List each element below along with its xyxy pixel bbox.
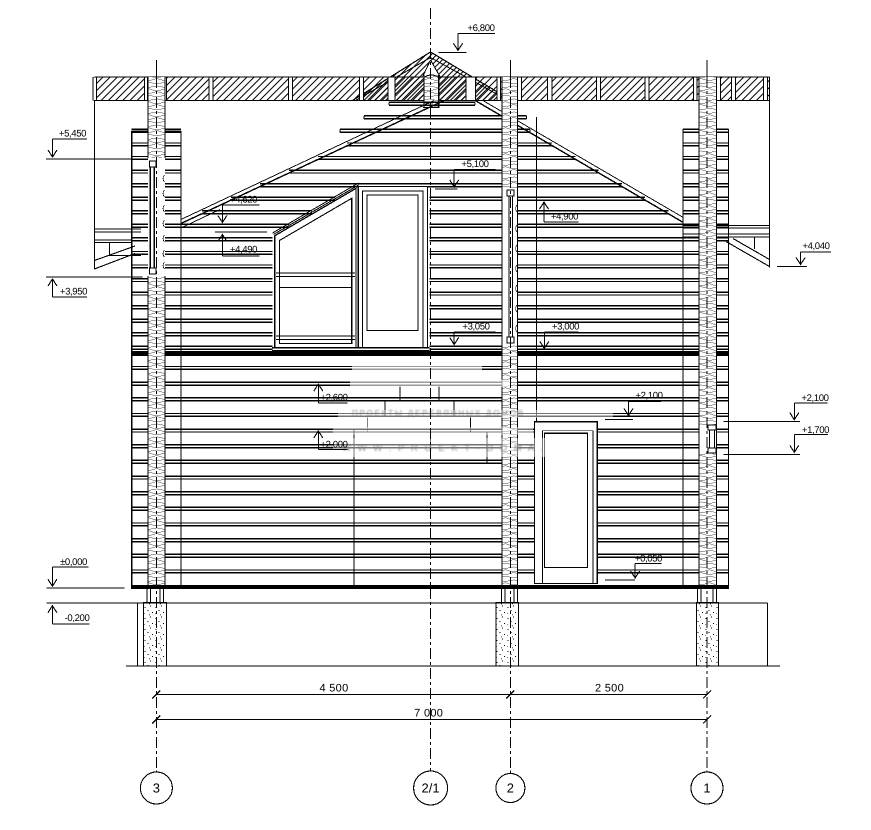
svg-text:W W W . P R O E K T - D O M A: W W W . P R O E K T - D O M A . R U [342,443,572,454]
svg-text:+0,050: +0,050 [635,553,662,564]
svg-text:1: 1 [703,781,710,796]
svg-text:+5,100: +5,100 [461,159,488,170]
svg-text:+6,800: +6,800 [467,23,494,34]
svg-text:+2,600: +2,600 [320,393,347,404]
svg-text:7 000: 7 000 [414,708,443,720]
svg-text:+4,620: +4,620 [230,195,257,206]
svg-text:±0,000: ±0,000 [60,557,87,568]
svg-text:+3,950: +3,950 [60,287,87,298]
svg-text:2/1: 2/1 [422,781,440,796]
svg-text:+2,100: +2,100 [801,393,828,404]
svg-text:+3,000: +3,000 [552,322,579,333]
svg-text:+5,450: +5,450 [59,128,86,139]
svg-text:+2,100: +2,100 [635,390,662,401]
svg-text:+2,000: +2,000 [320,439,347,450]
svg-text:-0,200: -0,200 [65,613,90,624]
svg-text:+4,040: +4,040 [802,241,829,252]
svg-text:+3,050: +3,050 [462,322,489,333]
svg-text:4 500: 4 500 [319,683,348,695]
svg-text:3: 3 [153,781,160,796]
svg-text:ПРОЕКТЫ ДЕРЕВЯННЫХ ДОМОВ: ПРОЕКТЫ ДЕРЕВЯННЫХ ДОМОВ [352,409,525,418]
svg-text:+4,490: +4,490 [230,245,257,256]
svg-text:+4,900: +4,900 [551,212,578,223]
svg-text:2 500: 2 500 [595,683,624,695]
svg-text:2: 2 [507,781,514,796]
